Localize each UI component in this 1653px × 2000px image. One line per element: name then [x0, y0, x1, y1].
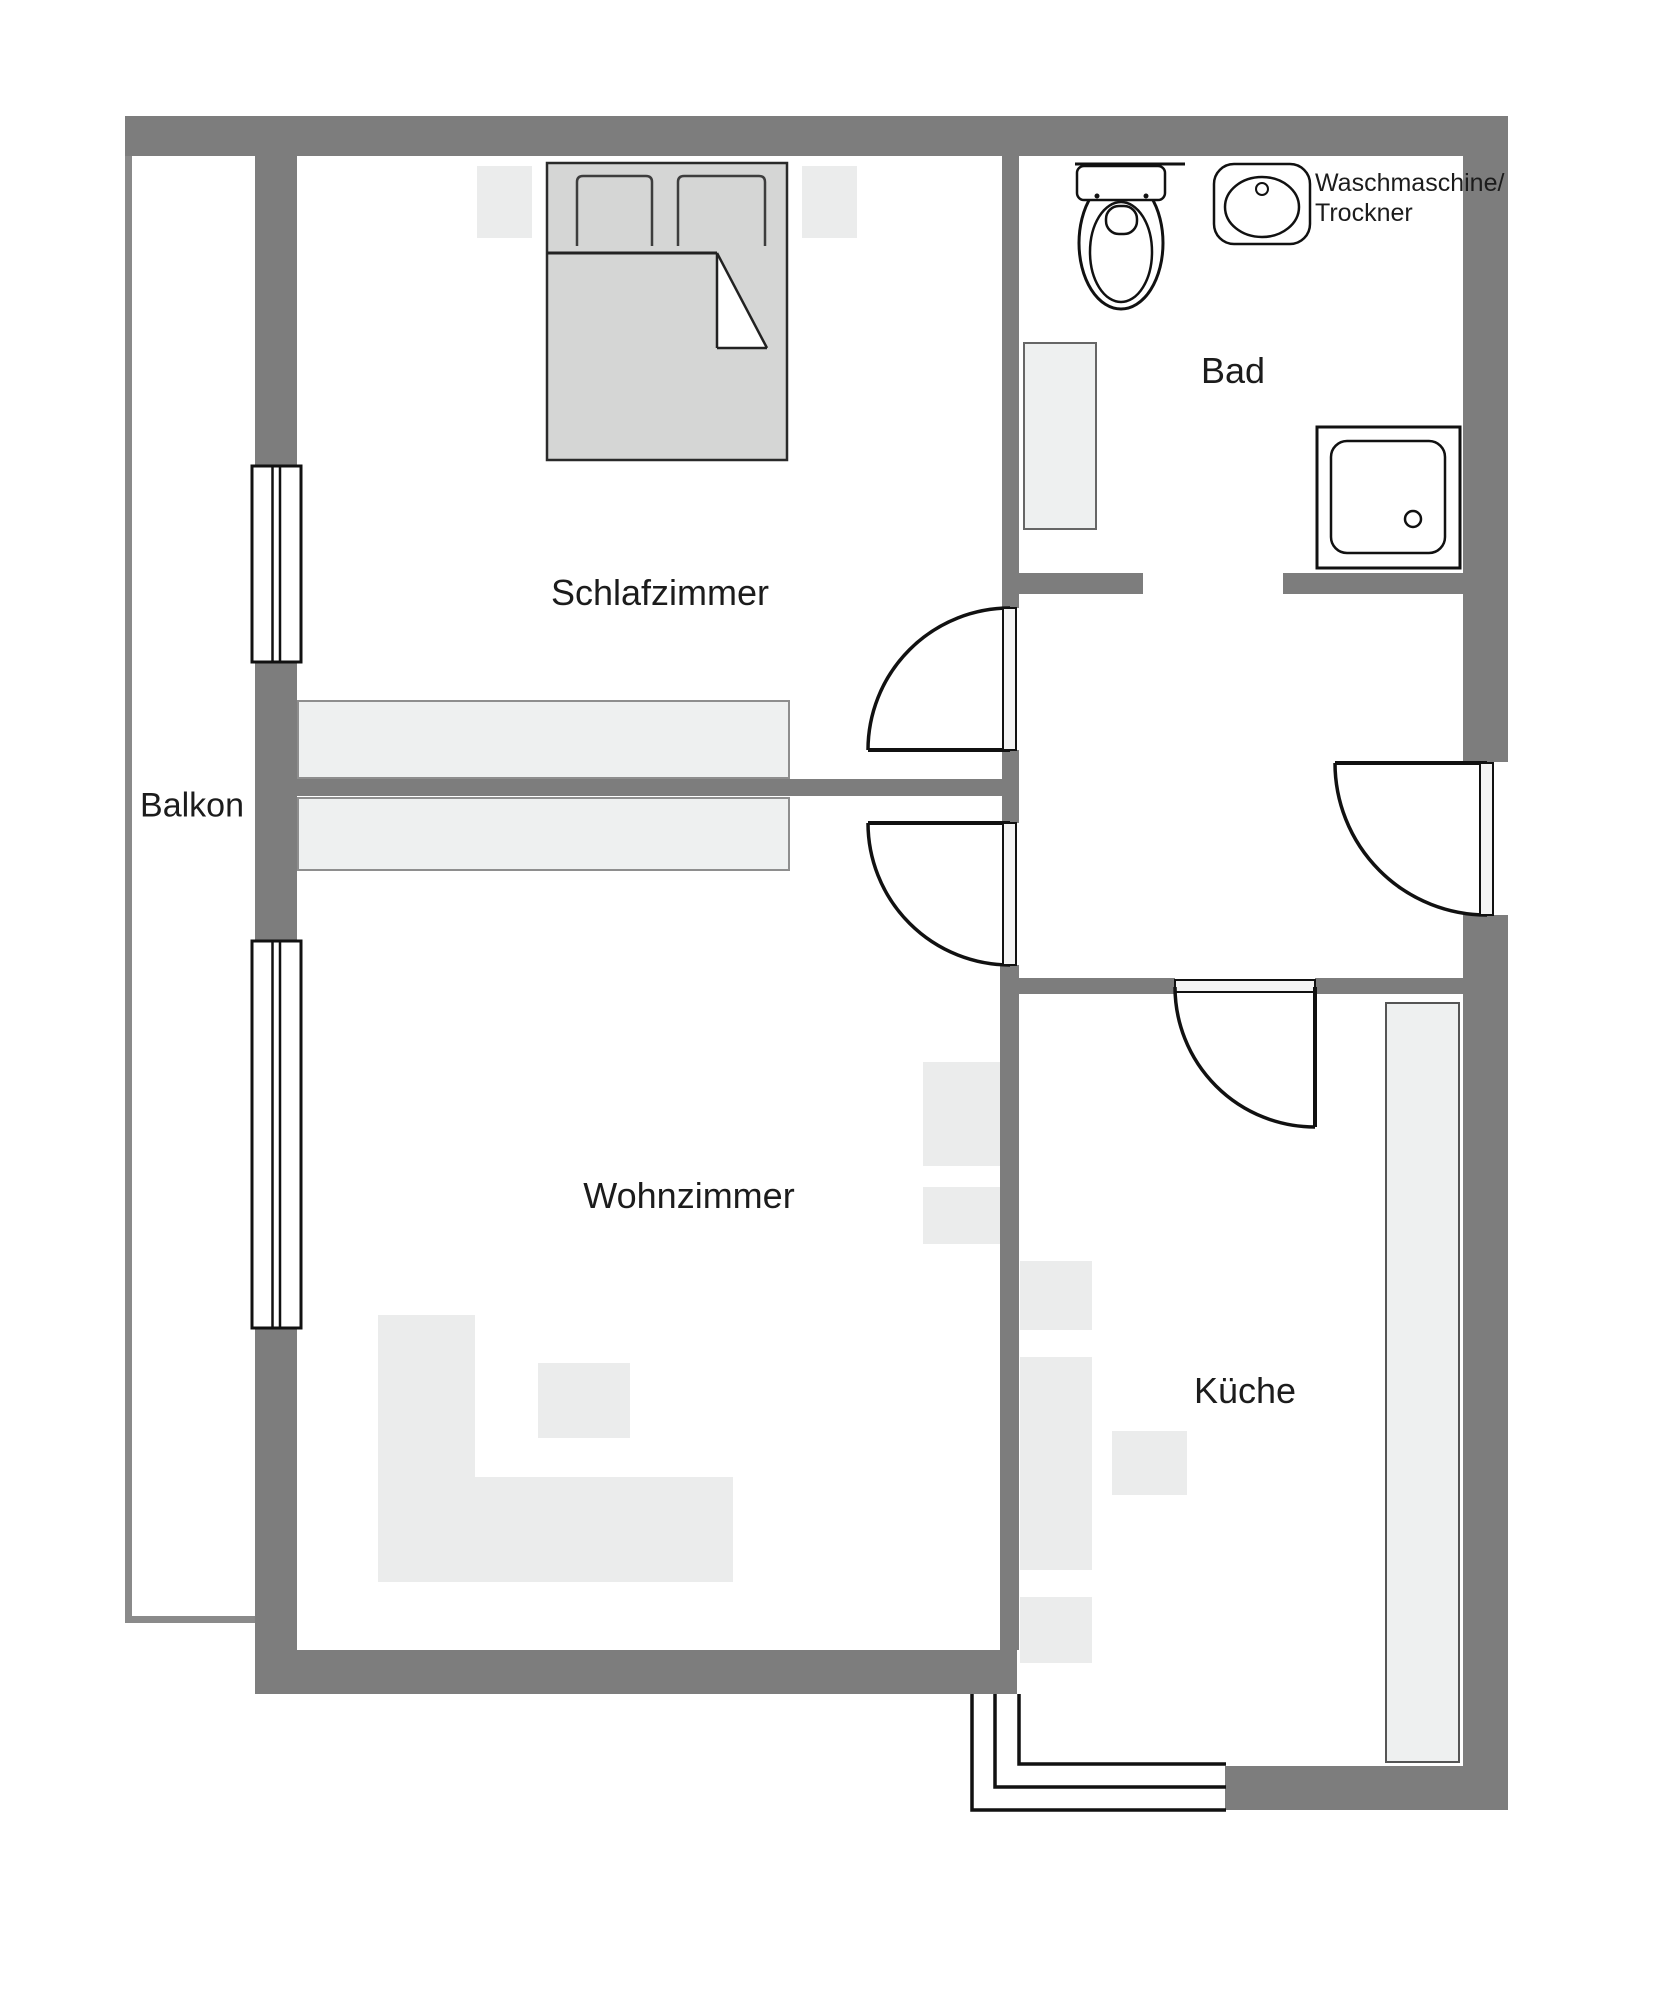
floor-plan: Schlafzimmer Bad Balkon Wohnzimmer Küche… [0, 0, 1653, 2000]
kitchen-appliance-mid [1020, 1357, 1092, 1570]
door-swing-icon [1175, 980, 1315, 1127]
toilet-icon [1075, 164, 1185, 309]
room-label-wohnzimmer: Wohnzimmer [583, 1175, 794, 1217]
door-swing-icon [868, 608, 1016, 750]
wall-left [255, 156, 297, 1694]
wall-bottom-kitchen [1225, 1766, 1508, 1810]
sideboard-living [297, 797, 790, 871]
wall-bedroom-living [297, 779, 1002, 796]
room-label-bad: Bad [1201, 350, 1265, 392]
wall-bottom-living [255, 1650, 1017, 1694]
kitchen-table [1112, 1431, 1187, 1495]
entry-steps-icon [972, 1694, 1226, 1810]
wall-kitchen-north-left [1019, 978, 1175, 994]
kitchen-appliance-top [1020, 1261, 1092, 1330]
washer-dryer-label-line2: Trockner [1315, 199, 1413, 227]
bath-cabinet [1023, 342, 1097, 530]
nightstand-left [477, 166, 532, 238]
room-label-balkon: Balkon [140, 787, 244, 826]
balcony-left-edge [125, 116, 132, 1623]
tv-board-upper [923, 1062, 1000, 1166]
balcony-bottom-edge [125, 1616, 271, 1623]
nightstand-right [802, 166, 857, 238]
wall-right-upper [1463, 156, 1508, 762]
room-label-kueche: Küche [1194, 1370, 1296, 1412]
wall-kitchen-north-right [1315, 978, 1463, 994]
wall-right-lower [1463, 915, 1508, 1810]
wall-hall-stub [1002, 750, 1019, 823]
wall-bedroom-bath [1002, 156, 1019, 608]
washer-dryer-label-line1: Waschmaschine/ [1315, 169, 1504, 197]
coffee-table [538, 1363, 630, 1438]
sofa-horizontal [378, 1477, 733, 1582]
door-swing-icon [868, 823, 1016, 965]
kitchen-counter [1385, 1002, 1460, 1763]
wall-hall-lower [1000, 965, 1019, 1650]
wall-bath-south-left [1002, 573, 1143, 594]
room-label-schlafzimmer: Schlafzimmer [551, 572, 769, 614]
washer-dryer-label: Waschmaschine/ Trockner [1315, 169, 1504, 228]
door-swing-icon [1335, 763, 1493, 915]
shower-icon [1317, 427, 1460, 568]
bed-icon [547, 163, 787, 460]
kitchen-appliance-bottom [1020, 1597, 1092, 1663]
wall-bath-south-right [1283, 573, 1463, 594]
tv-board-lower [923, 1187, 1000, 1244]
wall-top [125, 116, 1508, 156]
wardrobe-bedroom [297, 700, 790, 779]
washbasin-icon [1214, 164, 1310, 244]
